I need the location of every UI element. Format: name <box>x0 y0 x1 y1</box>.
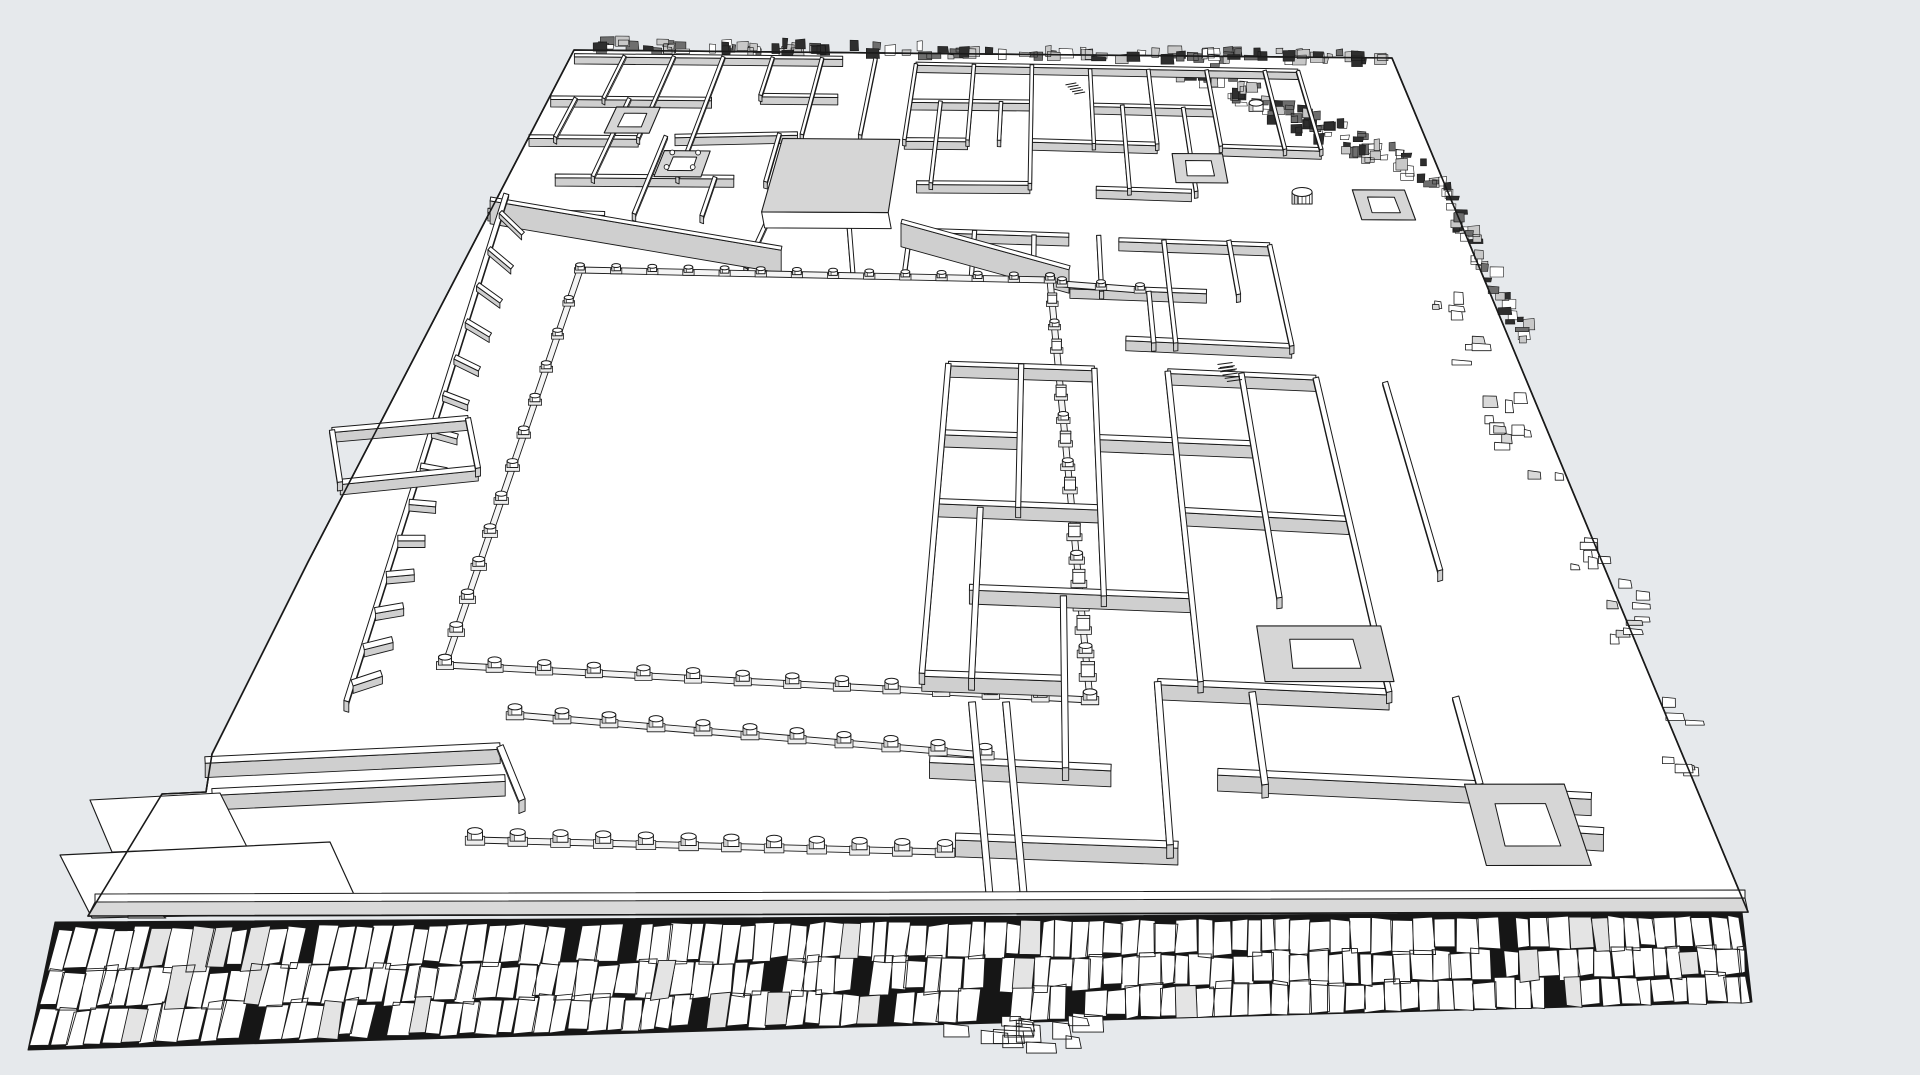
south-column-top <box>488 657 501 663</box>
west-column-top <box>541 361 551 365</box>
north-column-top <box>793 267 802 271</box>
portico-upper-column-top <box>743 724 757 730</box>
southeast-quarter-sunken-room-0-floor <box>1290 639 1361 668</box>
debris-stone <box>1528 471 1541 480</box>
round-column-0-top <box>1249 100 1263 106</box>
north-column-top <box>756 267 765 271</box>
south-column-top <box>786 673 799 679</box>
northwest-quarter-wall-5-top <box>555 174 734 179</box>
portico-lower-column-top <box>681 833 696 840</box>
east-pillar-top <box>1073 569 1085 572</box>
portico-lower-column-top <box>510 829 525 836</box>
portico-upper-column-top <box>696 720 710 726</box>
south-column-top <box>1083 689 1096 695</box>
west-column-top <box>450 622 463 628</box>
east-pillar-top <box>1060 431 1071 434</box>
south-column-top <box>538 660 551 666</box>
west-column-top <box>576 263 585 267</box>
debris-stone <box>1454 292 1464 304</box>
south-column-top <box>438 654 451 660</box>
magazine-partition-9-face <box>398 541 425 548</box>
porch-face <box>762 212 892 229</box>
north-ext-column-top <box>1097 280 1106 284</box>
east-pillar-top <box>1081 662 1094 665</box>
northeast-quarter-sunken-room-0-floor <box>1186 161 1215 176</box>
northeast-quarter-wall-9-face <box>966 140 969 147</box>
southeast-quarter-wall-15-face <box>1198 681 1203 693</box>
north-column-top <box>865 269 874 273</box>
south-column-top <box>885 678 898 684</box>
west-column-top <box>473 556 485 561</box>
debris-stone <box>1494 426 1507 434</box>
south-column-top <box>686 668 699 674</box>
southeast-quarter-wall-21-face <box>1167 845 1174 859</box>
northeast-quarter-wall-12-face <box>1156 144 1160 151</box>
portico-upper-column-top <box>837 732 851 738</box>
portico-upper-column-top <box>649 716 663 722</box>
portico-upper-column-top <box>931 739 945 745</box>
east-central-quarter-wall-12-face <box>1290 345 1294 354</box>
northwest-quarter-wall-3-top <box>529 135 638 140</box>
terrace-step <box>90 793 247 852</box>
portico-lower-column-top <box>468 828 483 835</box>
northeast-quarter-wall-19-face <box>1194 191 1198 198</box>
east-pillar-top <box>1077 616 1090 619</box>
north-column-top <box>684 265 693 269</box>
southeast-quarter-wall-14-face <box>1101 596 1106 607</box>
debris-stone <box>1588 557 1598 569</box>
southeast-quarter-wall-12-face <box>919 673 925 685</box>
east-column-top <box>1050 319 1059 323</box>
debris-stone <box>1666 713 1685 721</box>
post-base-dot <box>664 165 669 170</box>
northeast-quarter-wall-6-face <box>917 185 1030 194</box>
west-column-top <box>496 491 507 496</box>
north-column-top <box>648 264 657 268</box>
screenshot-root <box>0 0 1920 1075</box>
debris-stone <box>1524 429 1531 437</box>
southeast-quarter-wall-22-face <box>1262 784 1269 798</box>
portico-lower-column-top <box>852 837 867 844</box>
north-column-top <box>1009 272 1018 276</box>
east-column-top <box>1058 412 1068 417</box>
west-column-top <box>553 328 562 332</box>
northeast-quarter-wall-8-face <box>903 139 906 146</box>
debris-stone <box>1512 425 1526 435</box>
west-column-top <box>519 426 529 431</box>
east-column-top <box>1071 550 1083 555</box>
west-porch-wall-2-face <box>337 482 342 491</box>
porch-top <box>762 139 900 213</box>
east-central-quarter-wall-9-face <box>1100 291 1104 299</box>
north-column-top <box>901 270 910 274</box>
northeast-quarter-wall-13-face <box>1219 146 1222 153</box>
portico-lower-column-top <box>767 835 782 842</box>
north-column-top <box>937 271 946 275</box>
portico-lower-column-top <box>937 840 952 847</box>
post-base-dot <box>690 165 695 170</box>
east-pillar-top <box>1069 523 1081 526</box>
portico-lower-column-top <box>724 834 739 841</box>
west-column-top <box>461 589 473 595</box>
north-column-top <box>829 268 838 272</box>
northeast-quarter-wall-16-face <box>929 183 933 190</box>
east-central-quarter-wall-14-face <box>1152 343 1157 352</box>
west-column-top <box>507 459 518 464</box>
north-entrance-porch <box>762 139 900 229</box>
post-base-dot <box>696 150 701 155</box>
site-3d-model <box>0 0 1920 1075</box>
southeast-quarter-wall-13-face <box>1016 507 1021 517</box>
debris-stone <box>1495 442 1510 450</box>
northeast-quarter-wall-6-top <box>917 181 1030 186</box>
debris-stone <box>1619 579 1632 588</box>
portico-upper-column-top <box>884 735 898 741</box>
east-central-quarter-wall-10-face <box>1174 343 1178 352</box>
east-pillar-top <box>1065 477 1076 480</box>
west-column-top <box>484 524 496 529</box>
south-column-top <box>736 670 749 676</box>
northeast-quarter-wall-17-face <box>997 140 1001 147</box>
debris-stone <box>1433 304 1440 309</box>
round-feature <box>1249 100 1263 112</box>
south-column-top <box>637 665 650 671</box>
debris-stone <box>1686 720 1705 725</box>
southeast-quarter-wall-20-face <box>1062 768 1068 781</box>
portico-upper-column-top <box>555 708 569 714</box>
southeast-quarter-wall-16-face <box>1277 597 1282 609</box>
southeast-quarter-wall-19-face <box>969 678 975 690</box>
debris-stone <box>1636 591 1650 601</box>
north-ext-column-top <box>1136 283 1145 287</box>
east-central-quarter-sunken-room-0-floor <box>1368 197 1401 213</box>
south-column-top <box>835 676 848 682</box>
east-column-top <box>1062 458 1073 463</box>
north-column-top <box>973 271 982 275</box>
debris-stone <box>1514 393 1527 404</box>
southeast-quarter-wall-17-face <box>1387 691 1392 704</box>
northwest-quarter-wall-2-face <box>760 97 837 105</box>
northeast-quarter-wall-18-face <box>1128 188 1132 195</box>
portico-upper-column-top <box>790 728 804 734</box>
debris-stone <box>1472 343 1491 351</box>
portico-lower-column-top <box>895 838 910 845</box>
debris-stone <box>1555 473 1564 481</box>
portico-upper-column-top <box>602 712 616 718</box>
southeast-quarter-wall-18-face <box>1438 570 1443 582</box>
round-column-1-top <box>1292 187 1312 196</box>
debris-stone <box>1662 757 1674 764</box>
west-porch-wall-3-face <box>476 468 481 478</box>
east-pillar-top <box>1056 385 1066 388</box>
portico-lower-column-top <box>553 830 568 837</box>
east-column-top <box>1079 643 1092 649</box>
east-column-top <box>1046 273 1055 277</box>
northeast-quarter-wall-11-face <box>1092 143 1095 150</box>
debris-stone <box>1675 764 1693 773</box>
north-column-top <box>720 266 729 270</box>
debris-stone <box>1451 311 1463 321</box>
northeast-quarter-wall-10-face <box>1028 183 1032 190</box>
east-pillar-top <box>1052 339 1062 341</box>
northwest-quarter-wall-3-face <box>529 138 638 147</box>
debris-stone <box>1663 697 1676 707</box>
north-ext-column-top <box>1058 277 1067 281</box>
scene-root <box>0 0 1920 1075</box>
debris-stone <box>1483 396 1498 408</box>
portico-lower-column-top <box>809 836 824 843</box>
portico-upper-column-top <box>508 704 522 710</box>
round-feature <box>1292 187 1312 204</box>
east-pillar-top <box>1048 293 1057 295</box>
magazine-partition-9-top <box>398 535 425 541</box>
debris-stone <box>1505 400 1513 413</box>
portico-lower-column-top <box>596 831 611 838</box>
west-column-top <box>530 393 540 398</box>
west-column-top <box>564 295 573 299</box>
post-base-dot <box>670 150 675 155</box>
north-column-top <box>612 264 621 268</box>
northwest-quarter-wall-2-top <box>760 93 837 97</box>
east-central-quarter-wall-11-face <box>1236 294 1240 303</box>
south-column-top <box>587 662 600 668</box>
portico-lower-column-top <box>638 832 653 839</box>
